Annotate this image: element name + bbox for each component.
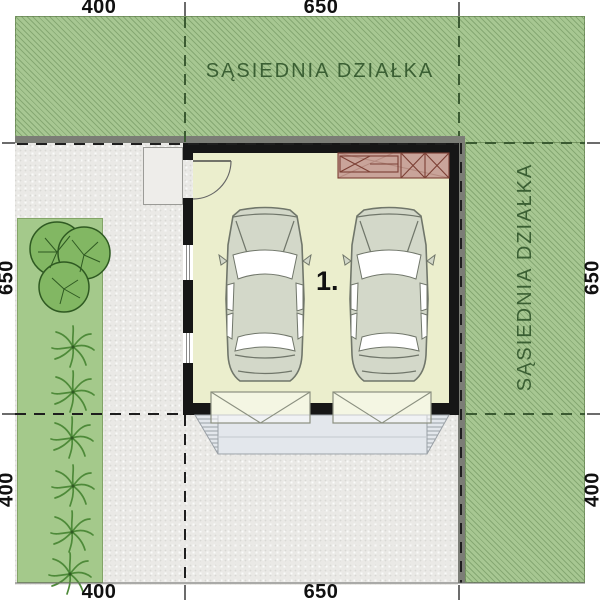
fence-strip-top [15,136,465,143]
window-left-2 [183,333,193,363]
dim-bottom-400: 400 [15,584,183,600]
room-number-label: 1. [316,266,339,297]
neighbor-plot-label-top: SĄSIEDNIA DZIAŁKA [170,59,470,83]
wall-left-seg3 [183,280,193,333]
wall-bottom-seg1 [183,403,211,415]
wall-bottom-pier [310,403,333,415]
garage-door-opening-right [333,403,431,415]
dim-left-400: 400 [0,455,16,525]
wall-bottom-seg2 [431,403,459,415]
wall-top [183,143,459,153]
dim-left-650: 650 [0,243,16,313]
window-left-1 [183,245,193,280]
wall-left-seg1 [183,143,193,160]
dim-bottom-650: 650 [183,584,459,600]
fence-strip-right [458,136,465,583]
dim-top-650: 650 [183,0,459,16]
wall-right [449,143,459,415]
entrance-pad [143,147,183,205]
garden-strip [17,218,103,583]
wall-left-seg2 [183,198,193,245]
dim-top-400: 400 [15,0,183,16]
garage-door-opening-left [211,403,310,415]
dim-right-650: 650 [585,243,602,313]
neighbor-plot-label-right: SĄSIEDNIA DZIAŁKA [513,127,537,427]
dim-right-400: 400 [585,455,602,525]
site-plan: SĄSIEDNIA DZIAŁKA SĄSIEDNIA DZIAŁKA 1. 4… [0,0,602,600]
